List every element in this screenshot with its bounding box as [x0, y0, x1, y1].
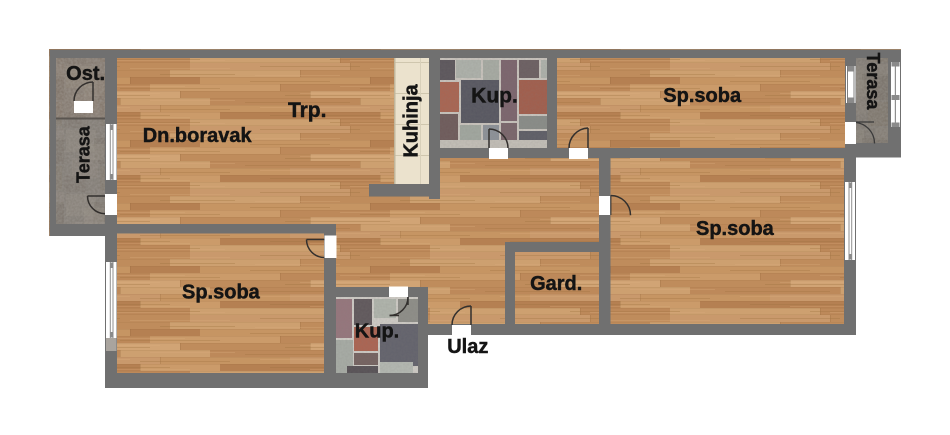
svg-text:Kup.: Kup. — [355, 321, 399, 343]
svg-text:Ulaz: Ulaz — [447, 336, 488, 358]
svg-text:Trp.: Trp. — [288, 99, 327, 122]
svg-text:Ost.: Ost. — [66, 63, 105, 85]
svg-text:Sp.soba: Sp.soba — [182, 281, 261, 303]
svg-text:Gard.: Gard. — [530, 273, 582, 295]
svg-text:Kuhinja: Kuhinja — [401, 83, 423, 157]
svg-text:Dn.boravak: Dn.boravak — [143, 125, 253, 147]
svg-text:Sp.soba: Sp.soba — [663, 85, 742, 107]
svg-text:Terasa: Terasa — [863, 53, 883, 111]
svg-text:Kup.: Kup. — [471, 85, 518, 108]
svg-text:Sp.soba: Sp.soba — [696, 218, 775, 240]
svg-text:Terasa: Terasa — [74, 125, 94, 183]
